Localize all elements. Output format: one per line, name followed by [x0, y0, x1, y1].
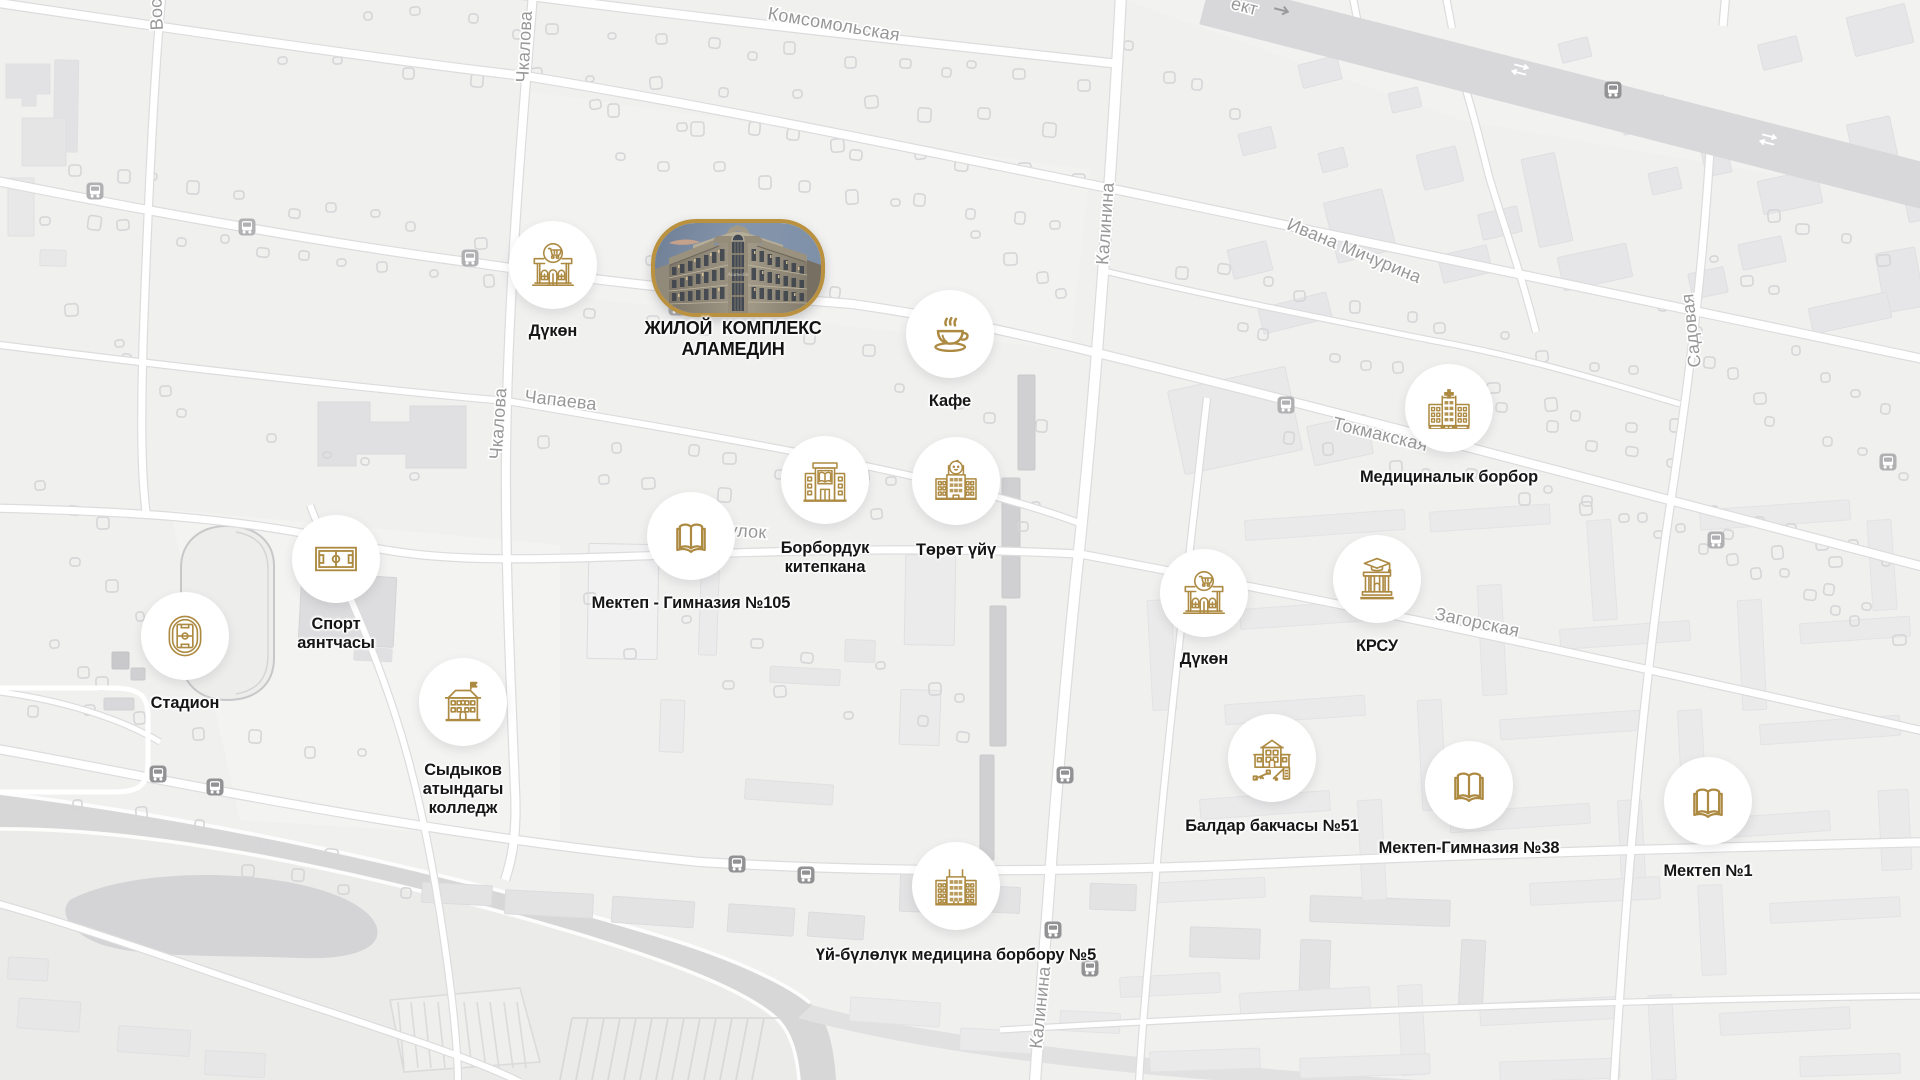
svg-text:Чкалова: Чкалова	[512, 10, 536, 84]
svg-text:Alamedin: Alamedin	[726, 272, 748, 278]
svg-text:Восточная: Восточная	[142, 0, 167, 31]
